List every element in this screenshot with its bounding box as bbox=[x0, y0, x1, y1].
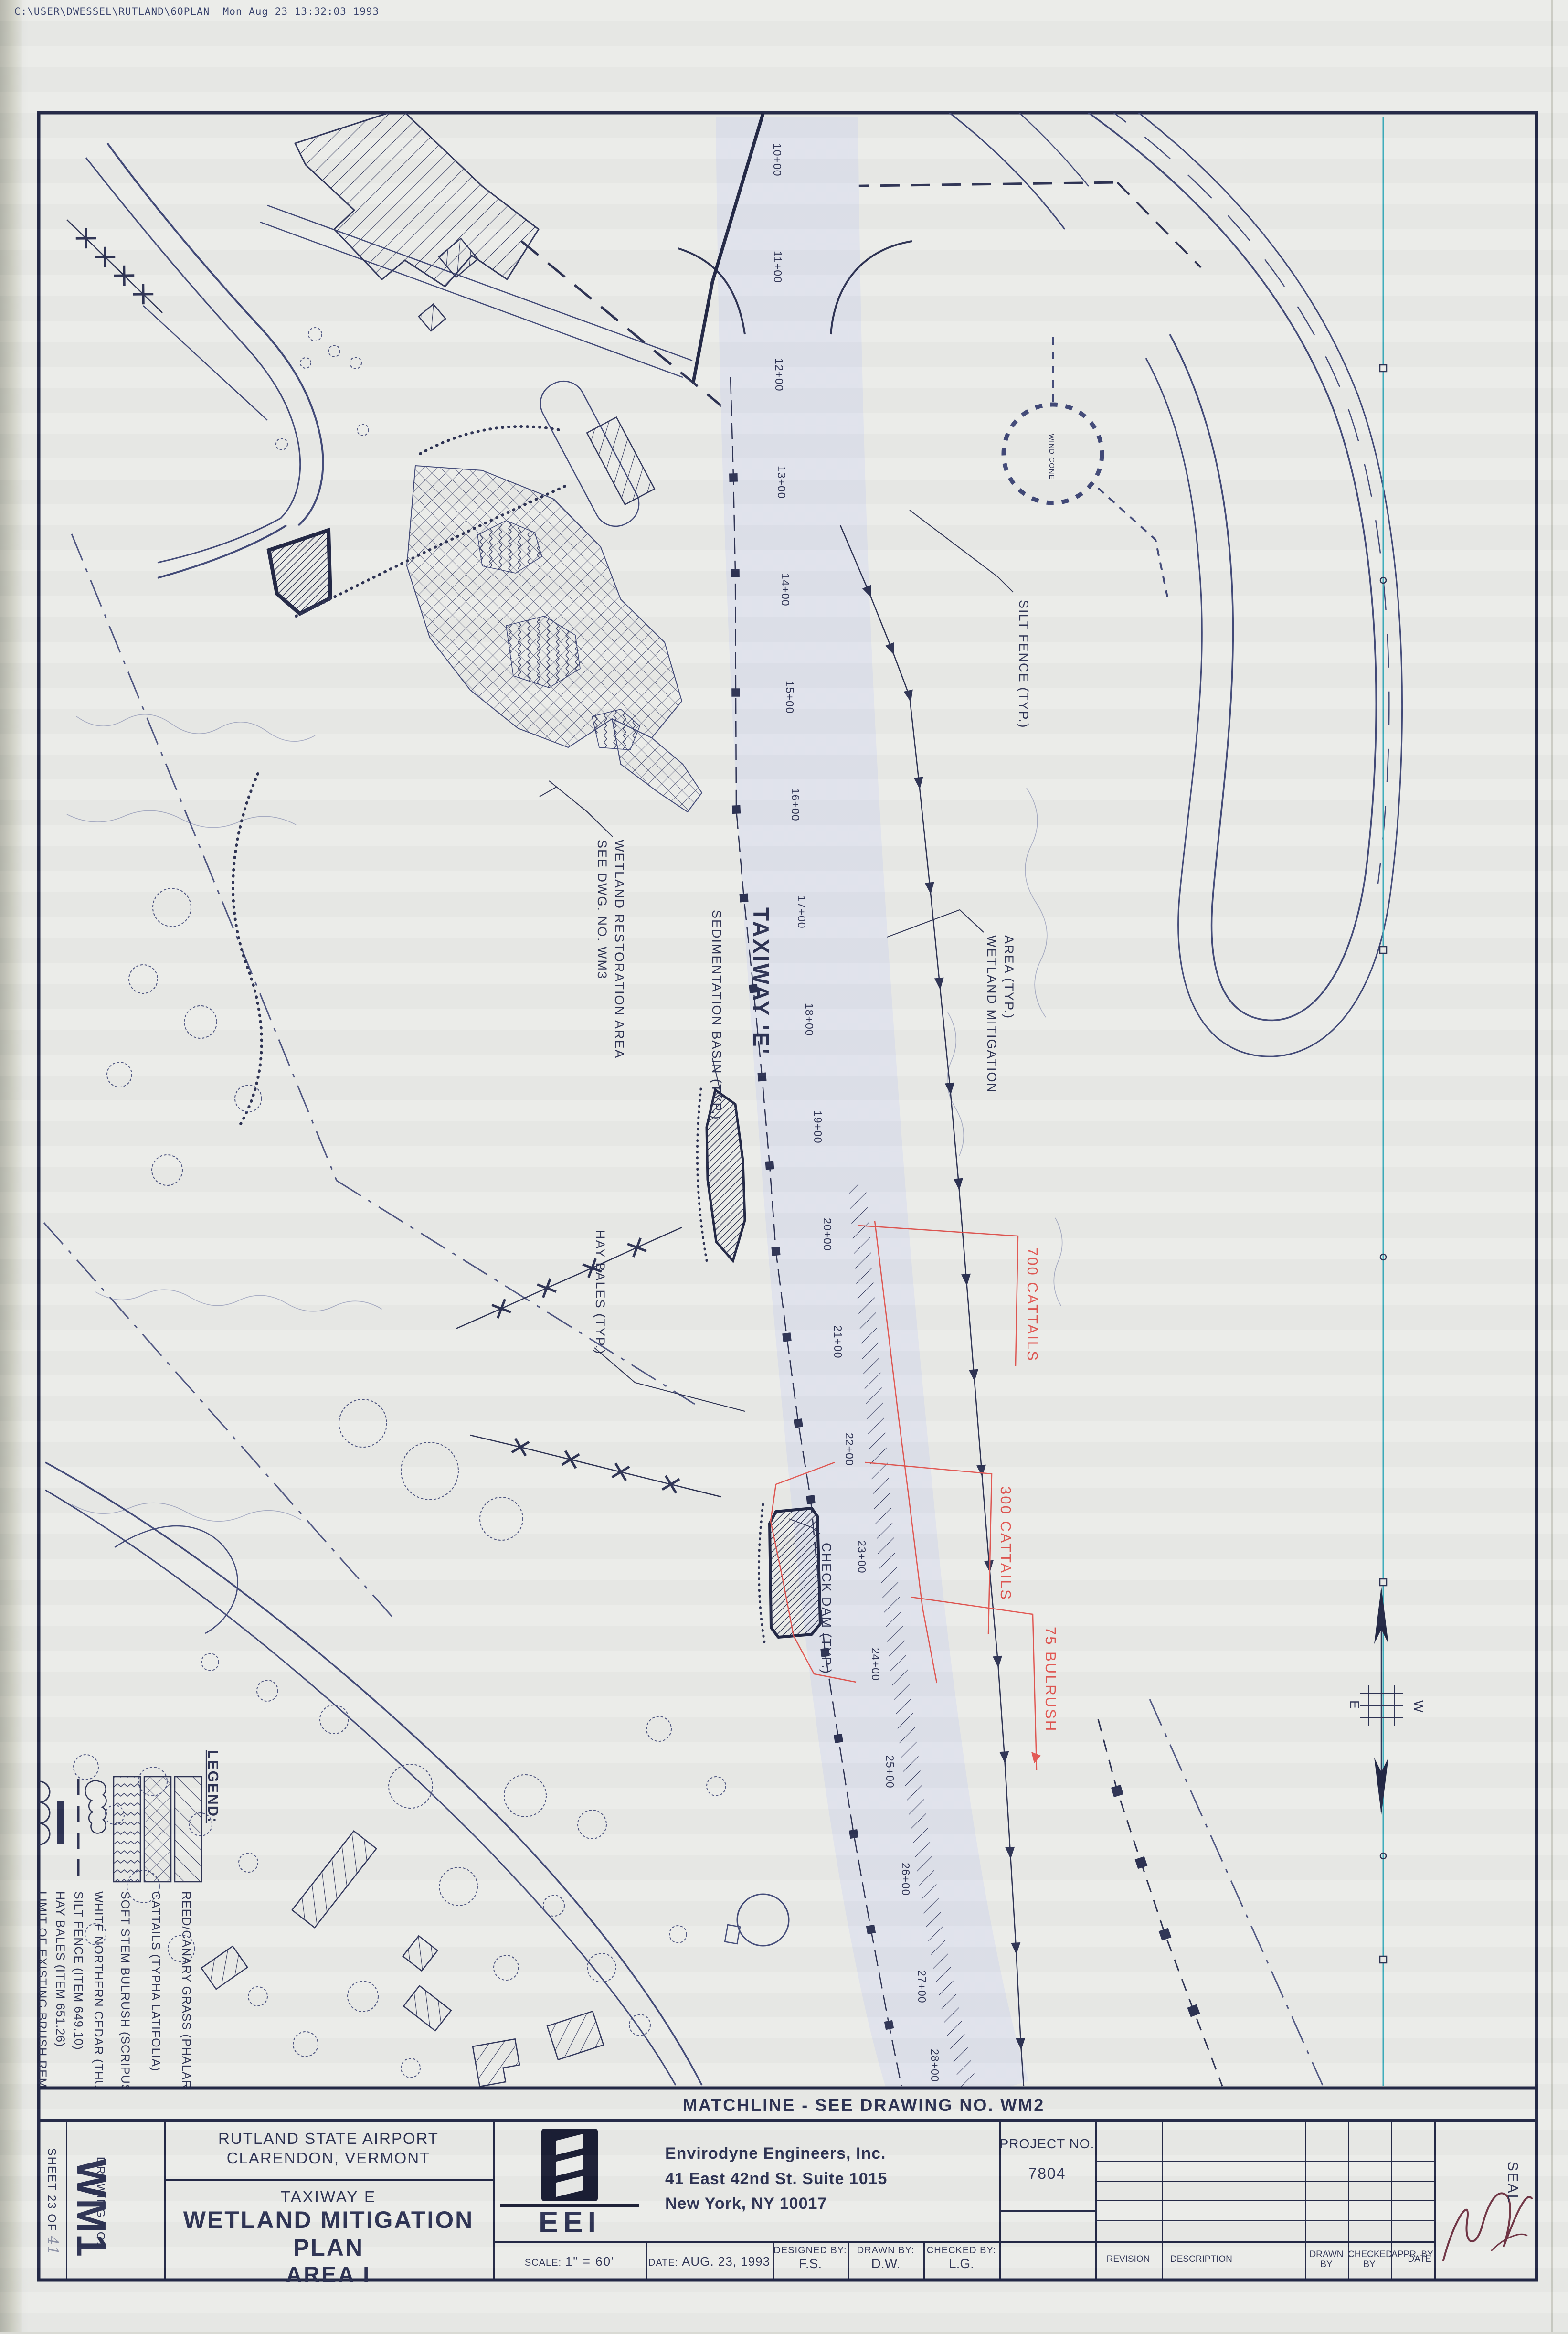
legend-swatch-reed bbox=[175, 1777, 201, 1882]
svg-text:18+00: 18+00 bbox=[803, 1003, 816, 1036]
svg-text:24+00: 24+00 bbox=[869, 1648, 882, 1681]
wetland-mitigation-label-2: AREA (TYP.) bbox=[1002, 935, 1016, 1019]
compass-e-label: E bbox=[1347, 1700, 1362, 1710]
rev-checked-by-header: CHECKED BY bbox=[1348, 2241, 1391, 2280]
eei-logo-text: EEI bbox=[500, 2204, 639, 2238]
sheet-number-handwritten: 41 bbox=[44, 2236, 61, 2256]
matchline-label: MATCHLINE - SEE DRAWING NO. WM2 bbox=[683, 2095, 1045, 2115]
plot-file-path: C:\USER\DWESSEL\RUTLAND\60PLAN Mon Aug 2… bbox=[14, 6, 379, 17]
legend-title: LEGEND: bbox=[205, 1750, 222, 1823]
red-300-cattails: 300 CATTAILS bbox=[997, 1486, 1014, 1601]
hay-bale-lines bbox=[456, 1227, 721, 1497]
airport-city: CLARENDON, VERMONT bbox=[164, 2148, 493, 2168]
wetland-restoration-label-2: SEE DWG. NO. WM3 bbox=[595, 840, 609, 980]
svg-text:12+00: 12+00 bbox=[773, 358, 785, 392]
svg-text:19+00: 19+00 bbox=[812, 1110, 824, 1144]
paper-edge bbox=[1551, 0, 1553, 2332]
sedimentation-basin-label: SEDIMENTATION BASIN (TYP.) bbox=[710, 910, 724, 1120]
taxiway-label: TAXIWAY 'E' bbox=[749, 907, 773, 1055]
project-location-cell: RUTLAND STATE AIRPORT CLARENDON, VERMONT bbox=[164, 2122, 493, 2179]
scan-edge bbox=[0, 0, 22, 2332]
eei-logo-icon bbox=[541, 2129, 598, 2201]
svg-text:23+00: 23+00 bbox=[856, 1540, 868, 1574]
title-block: SHEET 23 OF 41 DRAWING NO. WM1 RUTLAND S… bbox=[39, 2119, 1536, 2280]
red-75-bulrush: 75 BULRUSH bbox=[1042, 1627, 1059, 1732]
seal-cell: SEAL bbox=[1434, 2122, 1536, 2280]
svg-text:16+00: 16+00 bbox=[789, 788, 802, 821]
wetland-mitigation-label-1: WETLAND MITIGATION bbox=[985, 935, 999, 1093]
scale-value: 1" = 60' bbox=[565, 2254, 614, 2269]
sheet-label: SHEET 23 OF bbox=[45, 2148, 58, 2232]
drawing-sheet: C:\USER\DWESSEL\RUTLAND\60PLAN Mon Aug 2… bbox=[0, 0, 1568, 2332]
project-no-label: PROJECT NO. bbox=[999, 2136, 1095, 2152]
firm-name: Envirodyne Engineers, Inc. bbox=[665, 2141, 999, 2166]
sheet-area: AREA I bbox=[164, 2261, 493, 2287]
firm-address2: New York, NY 10017 bbox=[665, 2191, 999, 2217]
firm-address1: 41 East 42nd St. Suite 1015 bbox=[665, 2166, 999, 2192]
rev-date-header: DATE bbox=[1405, 2241, 1434, 2280]
svg-text:SOFT STEM BULRUSH (SCRIPUS VAL: SOFT STEM BULRUSH (SCRIPUS VALIDUS) bbox=[118, 1891, 132, 2154]
sheet-title-cell: TAXIWAY E WETLAND MITIGATION PLAN AREA I bbox=[164, 2179, 493, 2280]
red-700-cattails: 700 CATTAILS bbox=[1024, 1247, 1041, 1362]
taxiway-title: TAXIWAY E bbox=[164, 2188, 493, 2206]
seal-label: SEAL bbox=[1504, 2162, 1521, 2204]
svg-text:27+00: 27+00 bbox=[916, 1970, 928, 2004]
svg-text:22+00: 22+00 bbox=[843, 1433, 856, 1466]
svg-text:15+00: 15+00 bbox=[784, 681, 796, 714]
date-label: DATE: bbox=[648, 2258, 678, 2268]
checked-by-value: L.G. bbox=[923, 2256, 999, 2271]
drawn-by-value: D.W. bbox=[848, 2256, 923, 2271]
date-value: AUG. 23, 1993 bbox=[682, 2254, 770, 2269]
check-dam-label: CHECK DAM (TYP.) bbox=[819, 1543, 834, 1674]
svg-text:SILT FENCE (ITEM 649.10): SILT FENCE (ITEM 649.10) bbox=[72, 1891, 85, 2050]
rev-drawn-by-header: DRAWN BY bbox=[1305, 2241, 1348, 2280]
revision-header: REVISION bbox=[1095, 2241, 1162, 2280]
wind-cone-circle: WIND CONE bbox=[1004, 337, 1167, 597]
svg-text:21+00: 21+00 bbox=[832, 1325, 844, 1359]
hay-bales-label: HAY BALES (TYP.) bbox=[593, 1230, 607, 1355]
seal-signature bbox=[1434, 2122, 1536, 2280]
svg-text:CATTAILS (TYPHA LATIFOLIA): CATTAILS (TYPHA LATIFOLIA) bbox=[149, 1891, 162, 2071]
sheet-number-cell: SHEET 23 OF 41 bbox=[39, 2122, 66, 2280]
designed-by-value: F.S. bbox=[773, 2256, 848, 2271]
sheet-title: WETLAND MITIGATION PLAN bbox=[164, 2206, 493, 2261]
compass-w-label: W bbox=[1411, 1700, 1426, 1713]
checked-by-cell: CHECKED BY: L.G. bbox=[923, 2241, 999, 2280]
plan-canvas: WIND CONE bbox=[0, 0, 1568, 2332]
eei-logo-cell: EEI bbox=[493, 2122, 646, 2241]
checked-by-label: CHECKED BY: bbox=[923, 2245, 999, 2256]
airport-name: RUTLAND STATE AIRPORT bbox=[164, 2129, 493, 2148]
legend-swatch-cedar bbox=[85, 1780, 106, 1833]
silt-fence-line-east bbox=[1098, 1719, 1222, 2086]
date-cell: DATE: AUG. 23, 1993 bbox=[646, 2241, 773, 2280]
scale-cell: SCALE: 1" = 60' bbox=[493, 2241, 646, 2280]
wetland-restoration-label-1: WETLAND RESTORATION AREA bbox=[612, 840, 626, 1059]
drawn-by-cell: DRAWN BY: D.W. bbox=[848, 2241, 923, 2280]
north-arrow: E W bbox=[1347, 1587, 1426, 1815]
svg-text:11+00: 11+00 bbox=[772, 251, 784, 283]
wetland-restoration-area-shape bbox=[269, 530, 330, 614]
silt-fence-label: SILT FENCE (TYP.) bbox=[1017, 600, 1031, 729]
firm-cell: Envirodyne Engineers, Inc. 41 East 42nd … bbox=[646, 2122, 999, 2241]
svg-text:HAY BALES (ITEM 651.26): HAY BALES (ITEM 651.26) bbox=[53, 1891, 67, 2047]
svg-text:28+00: 28+00 bbox=[929, 2049, 941, 2082]
drawing-no-cell: DRAWING NO. WM1 bbox=[66, 2122, 164, 2280]
designed-by-cell: DESIGNED BY: F.S. bbox=[773, 2241, 848, 2280]
wind-cone-label: WIND CONE bbox=[1048, 434, 1056, 480]
scale-label: SCALE: bbox=[525, 2258, 562, 2268]
svg-text:25+00: 25+00 bbox=[884, 1755, 896, 1789]
drawn-by-label: DRAWN BY: bbox=[848, 2245, 923, 2256]
designed-by-label: DESIGNED BY: bbox=[773, 2245, 848, 2256]
svg-text:14+00: 14+00 bbox=[779, 573, 792, 607]
svg-text:13+00: 13+00 bbox=[775, 466, 788, 499]
legend-swatch-brush-removal bbox=[39, 1781, 50, 1844]
legend-swatch-cattails bbox=[144, 1777, 171, 1882]
svg-text:26+00: 26+00 bbox=[900, 1863, 912, 1896]
drawing-no-value: WM1 bbox=[67, 2159, 115, 2255]
project-no-value: 7804 bbox=[999, 2165, 1095, 2183]
svg-text:17+00: 17+00 bbox=[795, 895, 808, 929]
legend-swatch-bulrush bbox=[114, 1777, 140, 1882]
highway bbox=[912, 29, 1402, 1056]
svg-text:20+00: 20+00 bbox=[821, 1218, 834, 1251]
svg-text:10+00: 10+00 bbox=[771, 143, 784, 177]
project-no-cell: PROJECT NO. 7804 bbox=[999, 2122, 1095, 2210]
description-header: DESCRIPTION bbox=[1162, 2241, 1305, 2280]
